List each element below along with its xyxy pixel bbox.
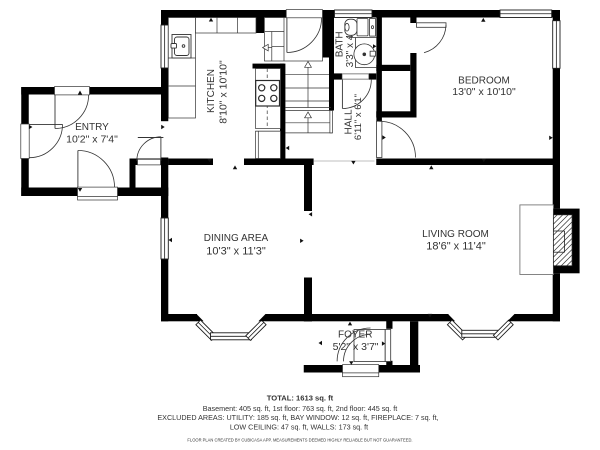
svg-text:8'10" x 10'10": 8'10" x 10'10"	[218, 60, 230, 124]
svg-text:Basement: 405 sq. ft, 1st floo: Basement: 405 sq. ft, 1st floor: 763 sq.…	[203, 404, 398, 413]
svg-text:10'3" x 11'3": 10'3" x 11'3"	[206, 246, 266, 258]
svg-text:DINING AREA: DINING AREA	[204, 233, 269, 244]
svg-text:LIVING ROOM: LIVING ROOM	[422, 229, 489, 240]
svg-text:EXCLUDED AREAS: UTILITY: 185 s: EXCLUDED AREAS: UTILITY: 185 sq. ft, BAY…	[157, 413, 438, 422]
svg-text:KITCHEN: KITCHEN	[206, 69, 217, 113]
svg-text:13'0" x 10'10": 13'0" x 10'10"	[452, 86, 516, 98]
svg-text:BEDROOM: BEDROOM	[458, 75, 510, 86]
svg-text:10'2" x 7'4": 10'2" x 7'4"	[66, 134, 118, 146]
svg-text:TOTAL: 1613 sq. ft: TOTAL: 1613 sq. ft	[267, 393, 334, 402]
svg-text:ENTRY: ENTRY	[75, 122, 109, 133]
svg-text:FLOOR PLAN CREATED BY CUBICASA: FLOOR PLAN CREATED BY CUBICASA APP. MEAS…	[187, 438, 412, 443]
svg-text:5'2" x 3'7": 5'2" x 3'7"	[333, 341, 379, 353]
svg-text:FOYER: FOYER	[338, 329, 372, 340]
svg-text:LOW CEILING: 47 sq. ft, WALLS:: LOW CEILING: 47 sq. ft, WALLS: 173 sq. f…	[230, 422, 368, 431]
svg-text:18'6" x 11'4": 18'6" x 11'4"	[426, 240, 486, 252]
svg-text:6'11" x 6'1": 6'11" x 6'1"	[353, 94, 364, 140]
